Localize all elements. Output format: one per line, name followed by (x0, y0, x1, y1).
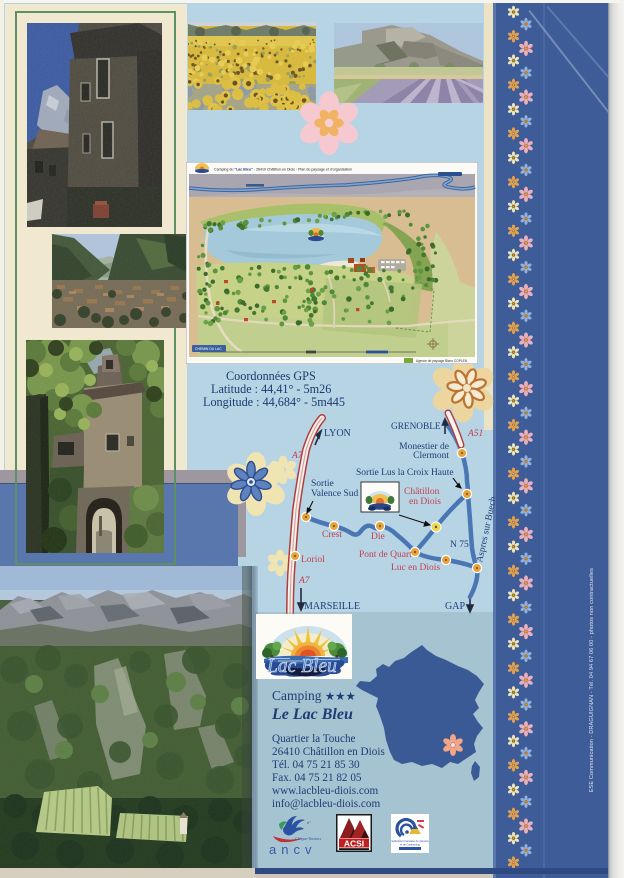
svg-text:Lac Bleu: Lac Bleu (266, 656, 337, 677)
svg-text:Valence Sud: Valence Sud (311, 489, 358, 499)
svg-text:Pont de Quart: Pont de Quart (359, 550, 412, 560)
svg-text:Fédération Française de Campin: Fédération Française de Camping (391, 839, 429, 843)
svg-text:GRENOBLE: GRENOBLE (391, 422, 441, 432)
svg-text:CHEMIN DU LAC: CHEMIN DU LAC (195, 347, 222, 351)
svg-text:ancv: ancv (269, 842, 316, 857)
svg-text:Châtillon: Châtillon (404, 487, 440, 497)
svg-text:Loriol: Loriol (301, 555, 325, 565)
svg-text:Die: Die (371, 532, 385, 542)
svg-text:A7: A7 (291, 451, 304, 461)
svg-text:GAP: GAP (445, 601, 465, 612)
svg-text:A7: A7 (298, 576, 311, 586)
svg-text:Sortie: Sortie (311, 479, 334, 489)
svg-text:et de Caravaning: et de Caravaning (400, 842, 420, 846)
svg-text:N 75: N 75 (450, 540, 469, 550)
svg-text:ACSI: ACSI (344, 839, 364, 849)
svg-text:MARSEILLE: MARSEILLE (304, 601, 360, 612)
svg-text:en Diois: en Diois (409, 497, 441, 507)
svg-text:Sortie Lus la Croix Haute: Sortie Lus la Croix Haute (356, 468, 454, 478)
svg-text:Agence de paysage Blanc COPLEN: Agence de paysage Blanc COPLEN (416, 359, 468, 363)
svg-text:LYON: LYON (324, 428, 351, 439)
svg-text:A51: A51 (467, 429, 483, 439)
svg-text:Luc en Diois: Luc en Diois (391, 563, 440, 573)
svg-text:Crest: Crest (322, 530, 342, 540)
svg-text:Clermont: Clermont (413, 451, 449, 461)
svg-text:n°: n° (307, 820, 311, 825)
svg-text:Camping du "Lac Bleu" - 2641: Camping du "Lac Bleu" - 26410 Châtillon … (214, 168, 352, 172)
svg-text:Chèque-Vacances: Chèque-Vacances (295, 836, 321, 841)
svg-text:Aspres sur Buech: Aspres sur Buech (475, 496, 495, 564)
